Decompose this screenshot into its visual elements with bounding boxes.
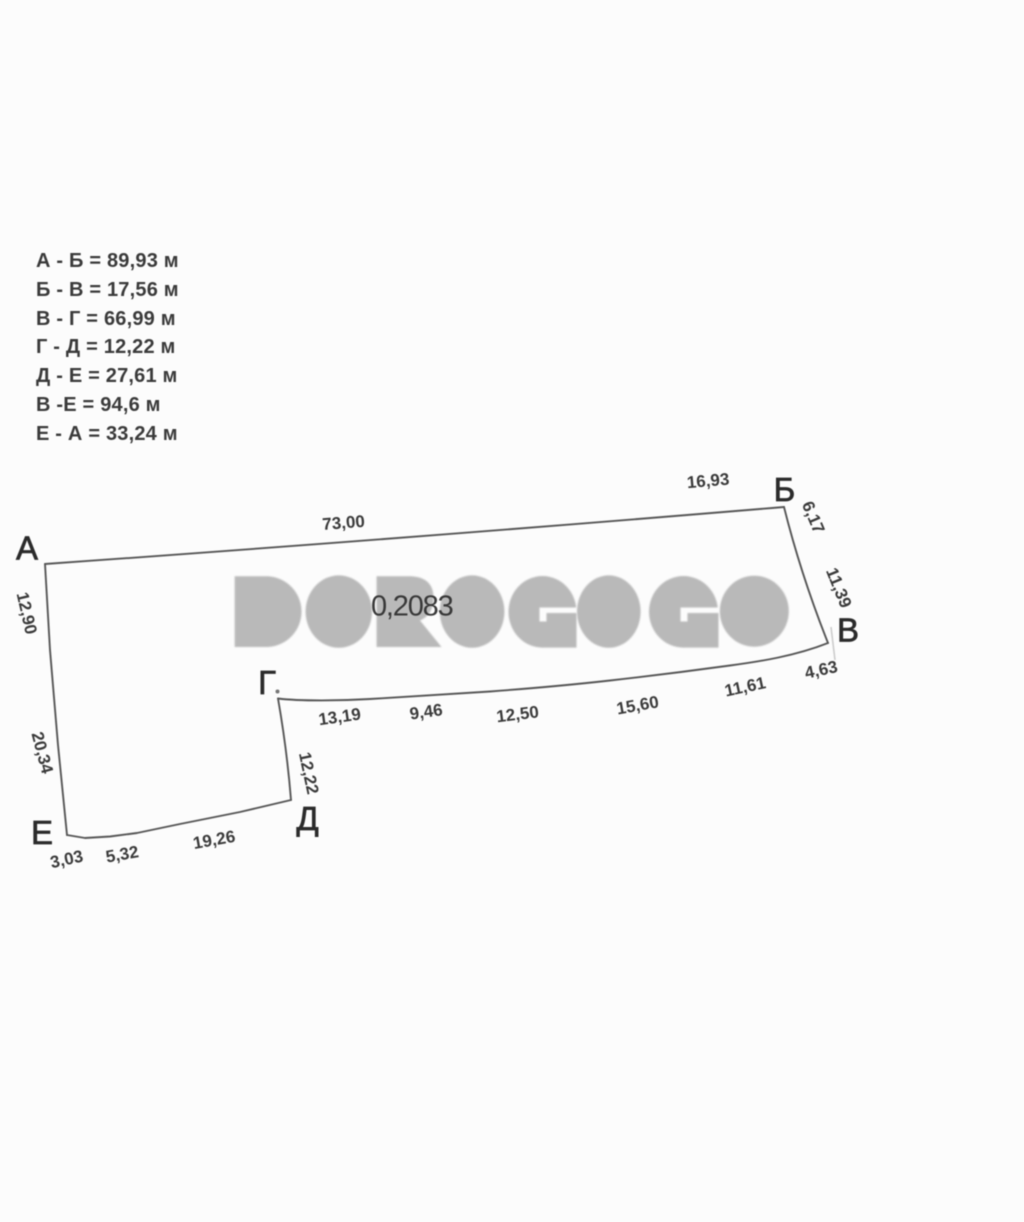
svg-text:3,03: 3,03	[49, 847, 85, 872]
svg-text:А: А	[16, 530, 38, 567]
svg-text:11,61: 11,61	[723, 673, 768, 700]
svg-text:12,90: 12,90	[13, 590, 41, 636]
svg-text:Д: Д	[296, 800, 318, 837]
svg-text:4,63: 4,63	[803, 657, 839, 682]
svg-text:6,17: 6,17	[798, 498, 828, 536]
svg-text:Б: Б	[774, 471, 796, 508]
svg-text:5,32: 5,32	[104, 842, 140, 866]
svg-text:20,34: 20,34	[27, 730, 57, 777]
svg-text:73,00: 73,00	[322, 512, 366, 534]
svg-text:Е: Е	[31, 814, 53, 851]
svg-text:В: В	[837, 612, 859, 649]
svg-text:15,60: 15,60	[615, 692, 660, 718]
svg-text:0,2083: 0,2083	[371, 591, 453, 623]
svg-text:16,93: 16,93	[686, 470, 730, 493]
svg-text:13,19: 13,19	[317, 705, 362, 730]
svg-text:12,22: 12,22	[295, 750, 322, 796]
svg-text:Г: Г	[258, 664, 276, 701]
svg-text:9,46: 9,46	[408, 700, 443, 723]
svg-text:19,26: 19,26	[192, 827, 237, 853]
svg-text:11,39: 11,39	[822, 565, 855, 611]
svg-text:12,50: 12,50	[495, 702, 540, 726]
